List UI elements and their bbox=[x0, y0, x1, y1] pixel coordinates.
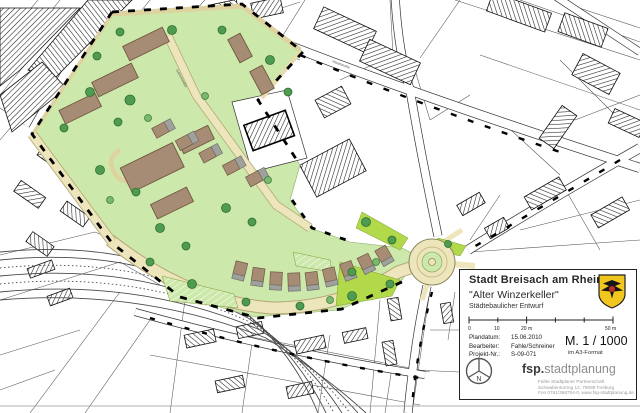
north-arrow-icon: N bbox=[464, 356, 494, 386]
site-plan-screenshot: Gartenstraße Hauptstraße Stadt Breisach … bbox=[0, 0, 640, 413]
meta-label: Bearbeiter: bbox=[469, 343, 511, 352]
scale-tick-50m: 50 m bbox=[605, 326, 616, 332]
scale-tick-0: 0 bbox=[468, 326, 471, 332]
firm-line: Fon 0761/368754-0, www.fsp-stadtplanung.… bbox=[538, 390, 634, 396]
meta-label: Plandatum: bbox=[469, 334, 511, 343]
scale-tick-10: 10 bbox=[494, 326, 500, 332]
breisach-coat-of-arms bbox=[598, 274, 626, 310]
meta-value: Fahle/Schreiner bbox=[511, 343, 555, 350]
scale-tick-20m: 20 m bbox=[521, 326, 532, 332]
meta-row: Bearbeiter:Fahle/Schreiner bbox=[469, 343, 555, 352]
north-letter: N bbox=[476, 376, 481, 383]
map-scale-text: M. 1 / 1000 bbox=[565, 334, 628, 348]
firm-address: Fahle Stadtplaner Partnerschaft Schwaben… bbox=[538, 379, 634, 396]
plan-project-title: "Alter Winzerkeller" bbox=[469, 289, 559, 301]
plan-city-title: Stadt Breisach am Rhein bbox=[469, 274, 603, 286]
title-block: Stadt Breisach am Rhein "Alter Winzerkel… bbox=[459, 269, 637, 400]
map-scale-note: im A3-Format bbox=[568, 350, 603, 356]
plan-type-subtitle: Städtebaulicher Entwurf bbox=[469, 303, 543, 310]
scale-bar: 0 10 20 m 50 m bbox=[467, 316, 631, 332]
meta-value: 15.06.2010 bbox=[511, 334, 542, 341]
firm-logo-text: fsp.stadtplanung bbox=[522, 362, 616, 376]
firm-logo-rest: stadtplanung bbox=[544, 362, 616, 376]
firm-logo-bold: fsp. bbox=[522, 362, 544, 376]
meta-value: S-09-071 bbox=[511, 351, 536, 358]
meta-row: Plandatum:15.06.2010 bbox=[469, 334, 555, 343]
